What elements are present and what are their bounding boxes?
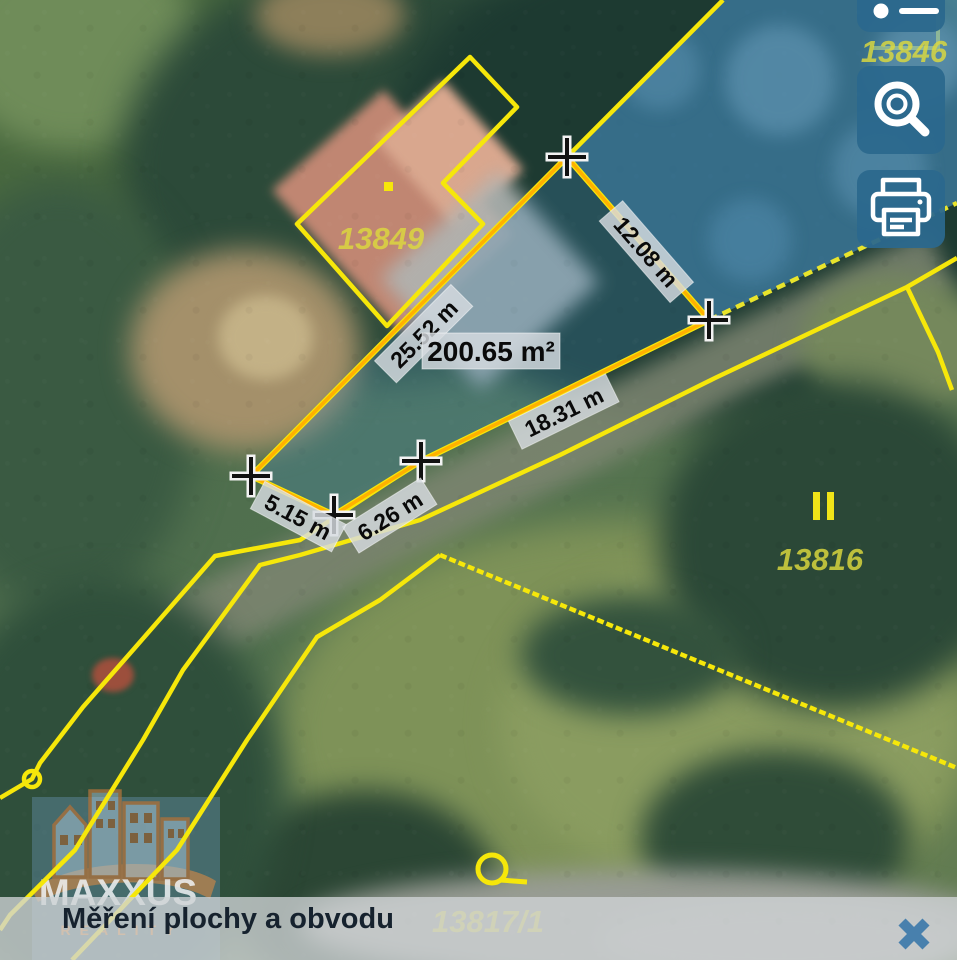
close-icon (902, 922, 926, 946)
map-viewport[interactable]: MAXXUS REALITY (0, 0, 957, 960)
well-symbol-icon (478, 855, 527, 883)
parcel-number-13816: 13816 (777, 542, 864, 577)
parcel-number-13846: 13846 (861, 34, 948, 69)
statusbar-title: Měření plochy a obvodu (0, 897, 394, 936)
slider-icon (857, 0, 945, 32)
area-label: 200.65 m² (422, 333, 560, 369)
zoom-search-button[interactable] (857, 66, 945, 154)
print-button[interactable] (857, 170, 945, 248)
land-use-mark (813, 492, 834, 520)
svg-text:200.65 m²: 200.65 m² (427, 336, 555, 367)
measure-statusbar: Měření plochy a obvodu (0, 897, 957, 960)
magnifier-icon (857, 66, 945, 154)
map-canvas[interactable]: 13849 13846 13816 13817/1 25.52 m 12.08 … (0, 0, 957, 960)
close-button[interactable] (896, 914, 934, 952)
measure-settings-button[interactable] (857, 0, 945, 32)
parcel-number-13849: 13849 (338, 221, 425, 256)
building-point-icon (384, 182, 393, 191)
printer-icon (857, 170, 945, 248)
